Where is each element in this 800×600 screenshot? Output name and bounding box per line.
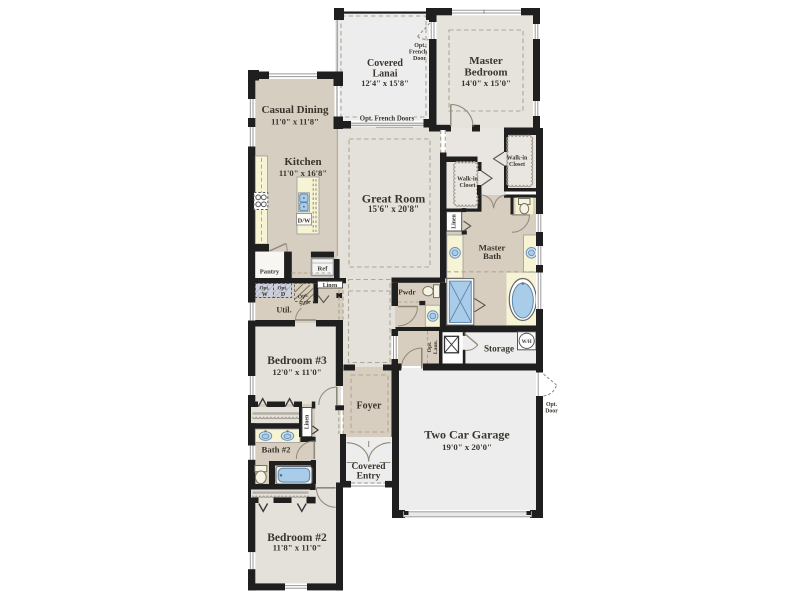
svg-text:Pwdr: Pwdr: [398, 288, 416, 297]
svg-text:Linen: Linen: [323, 283, 338, 289]
svg-text:Opt.: Opt.: [278, 286, 289, 292]
svg-text:Storage: Storage: [484, 344, 514, 354]
svg-text:11'0" x 11'8": 11'0" x 11'8": [271, 117, 319, 127]
svg-text:W: W: [262, 292, 268, 298]
svg-text:W/H: W/H: [522, 340, 532, 345]
svg-text:French: French: [409, 50, 428, 56]
svg-text:Util.: Util.: [276, 306, 291, 315]
svg-text:Opt.: Opt.: [546, 402, 558, 408]
svg-text:Laun.: Laun.: [433, 339, 439, 354]
svg-text:Opt.: Opt.: [427, 341, 433, 352]
svg-text:Closet: Closet: [509, 162, 525, 168]
svg-text:Walk-in: Walk-in: [507, 156, 528, 162]
svg-text:Opt.: Opt.: [260, 286, 271, 292]
svg-text:Two Car Garage: Two Car Garage: [424, 428, 510, 442]
svg-text:Bath #2: Bath #2: [261, 445, 291, 455]
svg-text:Entry: Entry: [357, 472, 381, 482]
svg-text:D: D: [281, 292, 286, 298]
svg-text:12'4" x 15'8": 12'4" x 15'8": [361, 79, 408, 88]
svg-text:Closet: Closet: [460, 183, 476, 189]
svg-text:12'0" x 11'0": 12'0" x 11'0": [272, 367, 321, 377]
svg-text:Covered: Covered: [351, 462, 386, 472]
svg-text:D/W: D/W: [298, 217, 311, 224]
svg-text:Bedroom: Bedroom: [464, 67, 507, 79]
svg-text:Linen: Linen: [304, 414, 310, 429]
svg-text:11'8" x 11'0": 11'8" x 11'0": [273, 543, 322, 553]
svg-text:Covered: Covered: [367, 58, 403, 69]
svg-text:Lanai: Lanai: [372, 69, 397, 80]
svg-text:Kitchen: Kitchen: [284, 156, 321, 168]
svg-text:15'6" x 20'8": 15'6" x 20'8": [368, 204, 419, 214]
svg-text:Bedroom #3: Bedroom #3: [267, 355, 327, 367]
svg-text:Casual Dining: Casual Dining: [262, 104, 329, 116]
svg-text:14'0" x 15'0": 14'0" x 15'0": [461, 78, 511, 88]
svg-text:Opt.: Opt.: [414, 43, 426, 49]
svg-text:Door: Door: [545, 409, 558, 415]
svg-text:Pantry: Pantry: [260, 269, 280, 276]
svg-text:Opt. French Doors: Opt. French Doors: [360, 116, 415, 123]
svg-text:11'0" x 16'8": 11'0" x 16'8": [279, 168, 327, 178]
svg-text:Linen: Linen: [452, 213, 458, 228]
svg-text:Walk-in: Walk-in: [457, 177, 478, 183]
svg-text:Master: Master: [469, 55, 503, 67]
svg-text:19'0" x 20'0": 19'0" x 20'0": [442, 442, 492, 452]
svg-text:Ref: Ref: [318, 266, 329, 273]
svg-text:Bath: Bath: [483, 251, 501, 261]
svg-text:Foyer: Foyer: [357, 401, 383, 412]
svg-text:Door: Door: [413, 56, 426, 62]
